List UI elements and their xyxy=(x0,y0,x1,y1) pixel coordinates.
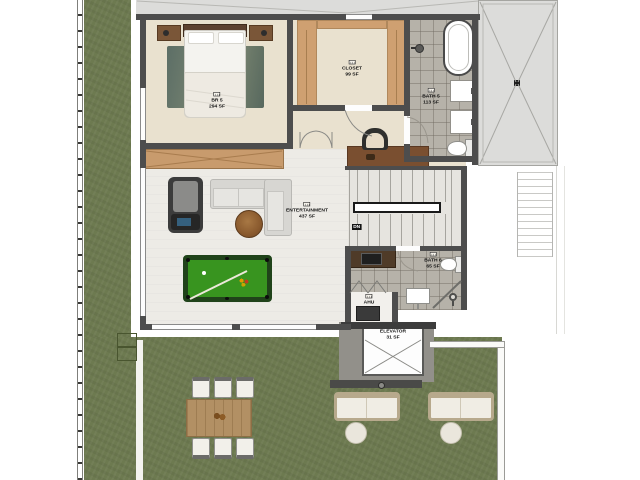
stair-handrail xyxy=(353,202,441,213)
shower-arm xyxy=(411,47,416,49)
wall-bedroom-east xyxy=(287,14,293,149)
outdoor-side-table xyxy=(440,422,462,444)
dining-chair xyxy=(192,377,210,398)
room-tag-icon xyxy=(430,252,437,256)
wall-bath6-west xyxy=(345,250,351,330)
room-area: 65 SF xyxy=(426,263,439,269)
window-west-bedroom xyxy=(140,88,146,140)
shower-stem xyxy=(452,301,454,306)
desk-chair-cushion xyxy=(366,133,384,148)
patio-drain xyxy=(378,382,385,389)
toilet-bowl xyxy=(440,258,457,271)
sideboard xyxy=(144,149,284,169)
wall-bath5-south xyxy=(404,156,478,162)
dining-chair xyxy=(214,377,232,398)
pool-pocket xyxy=(225,297,229,300)
wall-bedroom-south xyxy=(140,143,293,149)
closet-rod xyxy=(306,30,307,104)
pool-table xyxy=(183,255,272,302)
room-label-closet: CLOSET 99 SF xyxy=(342,60,362,77)
window-west-entertainment xyxy=(140,168,146,316)
dining-chair xyxy=(192,438,210,459)
room-name: BATH 6 xyxy=(424,257,442,263)
stairs-down-label: DN xyxy=(352,224,361,230)
dining-chair xyxy=(214,438,232,459)
closet-shelving-left xyxy=(297,20,317,106)
room-name: CLOSET xyxy=(342,65,362,71)
room-area: 99 SF xyxy=(345,71,358,77)
roof-strip-top xyxy=(136,0,480,15)
outdoor-sofa xyxy=(428,392,494,421)
room-label-elevator: ELEVATOR 31 SF xyxy=(380,328,406,340)
pool-pocket xyxy=(186,258,190,262)
room-area: 31 SF xyxy=(386,334,399,340)
pillow xyxy=(218,32,244,44)
wall-stair-north xyxy=(345,166,466,170)
pool-pocket xyxy=(225,257,229,260)
outdoor-side-table xyxy=(345,422,367,444)
planter-step xyxy=(117,347,137,361)
pillow xyxy=(188,32,214,44)
pool-pocket xyxy=(265,258,269,262)
shower-head-icon xyxy=(449,293,457,301)
wall-east-upper xyxy=(472,14,478,165)
toilet-bowl xyxy=(447,141,467,156)
room-label-bath6: BATH 6 65 SF xyxy=(424,252,442,269)
room-tag-icon xyxy=(366,294,373,298)
terrace-railing-right xyxy=(497,341,505,480)
treadmill-belt xyxy=(173,181,198,212)
cushion-divider xyxy=(238,188,239,207)
ahu-unit xyxy=(356,306,380,321)
window-north xyxy=(346,14,372,20)
room-label-ahu: AHU xyxy=(364,294,375,305)
room-name: ENTERTAINMENT xyxy=(286,207,328,213)
left-railing xyxy=(77,0,83,480)
floor-plan: DN xyxy=(0,0,640,480)
nightstand xyxy=(157,25,181,41)
sofa-cushion-divider xyxy=(460,398,461,418)
desk-accessory xyxy=(366,154,375,160)
bathtub-inner xyxy=(448,24,469,71)
table-lamp xyxy=(261,30,267,36)
sofa-cushion-divider xyxy=(366,398,367,418)
closet-shelf-top xyxy=(317,20,387,29)
room-area: 294 SF xyxy=(209,103,225,109)
stair-edge-line xyxy=(451,170,452,247)
stair-treads-upper xyxy=(357,170,451,202)
room-label-bath5: BATH 5 113 SF xyxy=(422,88,440,105)
dining-chair xyxy=(236,438,254,459)
room-tag-icon xyxy=(428,88,435,92)
closet-door-opening xyxy=(345,105,372,111)
cue-ball xyxy=(202,271,206,275)
bath5-door-opening xyxy=(404,116,410,144)
room-tag-icon xyxy=(214,92,221,96)
projection-line xyxy=(564,166,565,334)
room-tag-icon xyxy=(304,202,311,206)
patio-edge-wall xyxy=(330,380,422,388)
wall-north xyxy=(136,14,480,20)
room-name: BATH 5 xyxy=(422,93,440,99)
sink-pedestal xyxy=(417,304,419,309)
bath6-sink xyxy=(361,253,382,265)
pedestal-sink xyxy=(406,288,430,304)
treadmill-screen xyxy=(177,218,191,226)
planter-step xyxy=(117,333,137,347)
room-area: 437 SF xyxy=(299,213,315,219)
pool-pocket xyxy=(186,295,190,299)
bath6-door-opening xyxy=(396,246,420,251)
wall-ahu-east xyxy=(392,292,398,326)
closet-rod xyxy=(396,30,397,104)
dining-chair xyxy=(236,377,254,398)
chaise-cushion xyxy=(267,191,284,231)
coffee-table xyxy=(235,210,263,238)
roof-center-post xyxy=(514,80,520,86)
room-name: BR 5 xyxy=(211,97,222,103)
room-tag-icon xyxy=(349,60,356,64)
room-name: AHU xyxy=(364,299,375,305)
room-area: 113 SF xyxy=(423,99,439,105)
pool-pocket xyxy=(265,295,269,299)
room-label-br5: BR 5 294 SF xyxy=(209,92,225,109)
shower-head-icon xyxy=(415,44,424,53)
terrace-railing-top xyxy=(430,341,505,348)
wall-east-mid xyxy=(461,166,467,310)
projection-line xyxy=(556,166,557,334)
stair-edge-line xyxy=(349,170,350,247)
table-centerpiece xyxy=(212,411,226,422)
stair-treads-lower xyxy=(357,214,451,247)
room-label-entertainment: ENTERTAINMENT 437 SF xyxy=(286,202,328,219)
window-south xyxy=(240,324,316,330)
window-south xyxy=(152,324,232,330)
table-lamp xyxy=(163,30,169,36)
garden-path xyxy=(136,340,143,480)
room-name: ELEVATOR xyxy=(380,328,406,334)
exterior-stair-ladder xyxy=(517,172,553,257)
outdoor-sofa xyxy=(334,392,400,421)
pool-balls xyxy=(238,278,250,287)
